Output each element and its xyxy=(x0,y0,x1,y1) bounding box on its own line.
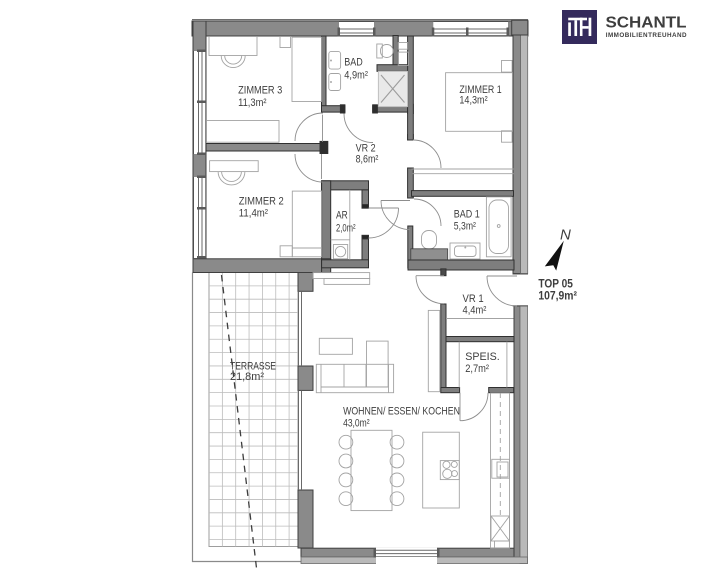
svg-text:14,3m²: 14,3m² xyxy=(459,95,487,107)
svg-text:8,6m²: 8,6m² xyxy=(356,154,379,166)
svg-text:BAD 1: BAD 1 xyxy=(454,209,480,221)
svg-text:SCHANTL: SCHANTL xyxy=(606,15,687,32)
svg-text:ZIMMER 2: ZIMMER 2 xyxy=(239,196,284,208)
svg-text:107,9m²: 107,9m² xyxy=(538,289,577,303)
svg-text:BAD: BAD xyxy=(344,56,363,68)
svg-text:AR: AR xyxy=(336,210,348,222)
svg-text:IMMOBILIENTREUHAND: IMMOBILIENTREUHAND xyxy=(606,32,687,39)
svg-text:4,4m²: 4,4m² xyxy=(463,305,487,317)
svg-text:11,3m²: 11,3m² xyxy=(238,97,267,109)
svg-text:2,7m²: 2,7m² xyxy=(465,363,489,375)
svg-text:21,8m²: 21,8m² xyxy=(230,371,264,383)
svg-text:WOHNEN/ ESSEN/ KOCHEN: WOHNEN/ ESSEN/ KOCHEN xyxy=(343,405,460,417)
svg-text:11,4m²: 11,4m² xyxy=(239,208,268,220)
svg-text:N: N xyxy=(560,227,571,244)
svg-text:5,3m²: 5,3m² xyxy=(454,220,476,232)
svg-text:VR 1: VR 1 xyxy=(463,293,484,305)
svg-text:SPEIS.: SPEIS. xyxy=(465,351,500,363)
svg-text:43,0m²: 43,0m² xyxy=(343,418,370,430)
svg-text:2,0m²: 2,0m² xyxy=(336,223,356,235)
svg-text:ZIMMER 3: ZIMMER 3 xyxy=(238,84,282,96)
svg-text:4,9m²: 4,9m² xyxy=(344,70,368,82)
svg-text:VR 2: VR 2 xyxy=(356,142,376,154)
